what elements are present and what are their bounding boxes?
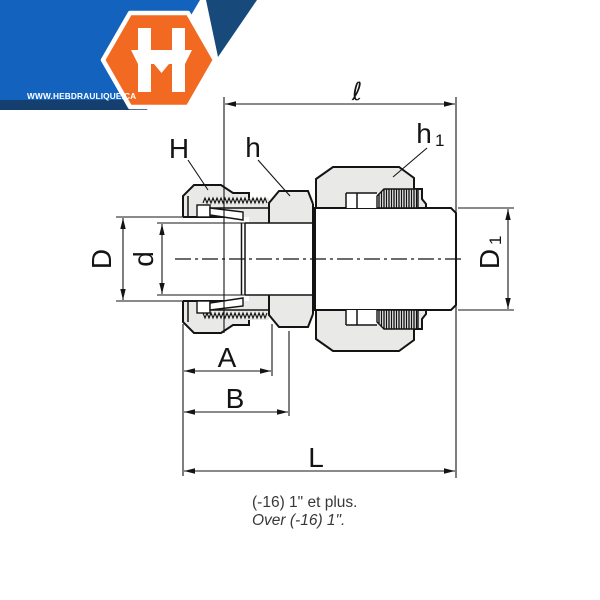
drawing-canvas: WWW.HEBDRAULIQUE.CA <box>0 0 600 600</box>
dim-ell <box>225 101 455 106</box>
label-h: h <box>245 132 261 163</box>
label-D1: D <box>474 249 505 269</box>
label-D1-subscript: 1 <box>486 236 505 245</box>
label-A: A <box>218 342 237 373</box>
logo-corner-ribbon <box>206 0 257 57</box>
label-h1-subscript: 1 <box>435 131 444 150</box>
catalog-page: WWW.HEBDRAULIQUE.CA <box>0 0 600 600</box>
caption-line-french: (-16) 1" et plus. <box>252 494 357 511</box>
logo-website-text: WWW.HEBDRAULIQUE.CA <box>27 91 136 101</box>
label-L: L <box>308 442 324 473</box>
label-h1: h <box>416 118 432 149</box>
label-D: D <box>86 249 117 269</box>
label-ell: ℓ <box>351 77 362 106</box>
label-B: B <box>226 383 245 414</box>
label-H: H <box>169 133 189 164</box>
hebdraulique-logo: WWW.HEBDRAULIQUE.CA <box>0 0 257 110</box>
caption-line-english: Over (-16) 1". <box>252 512 345 529</box>
label-d: d <box>128 251 159 267</box>
